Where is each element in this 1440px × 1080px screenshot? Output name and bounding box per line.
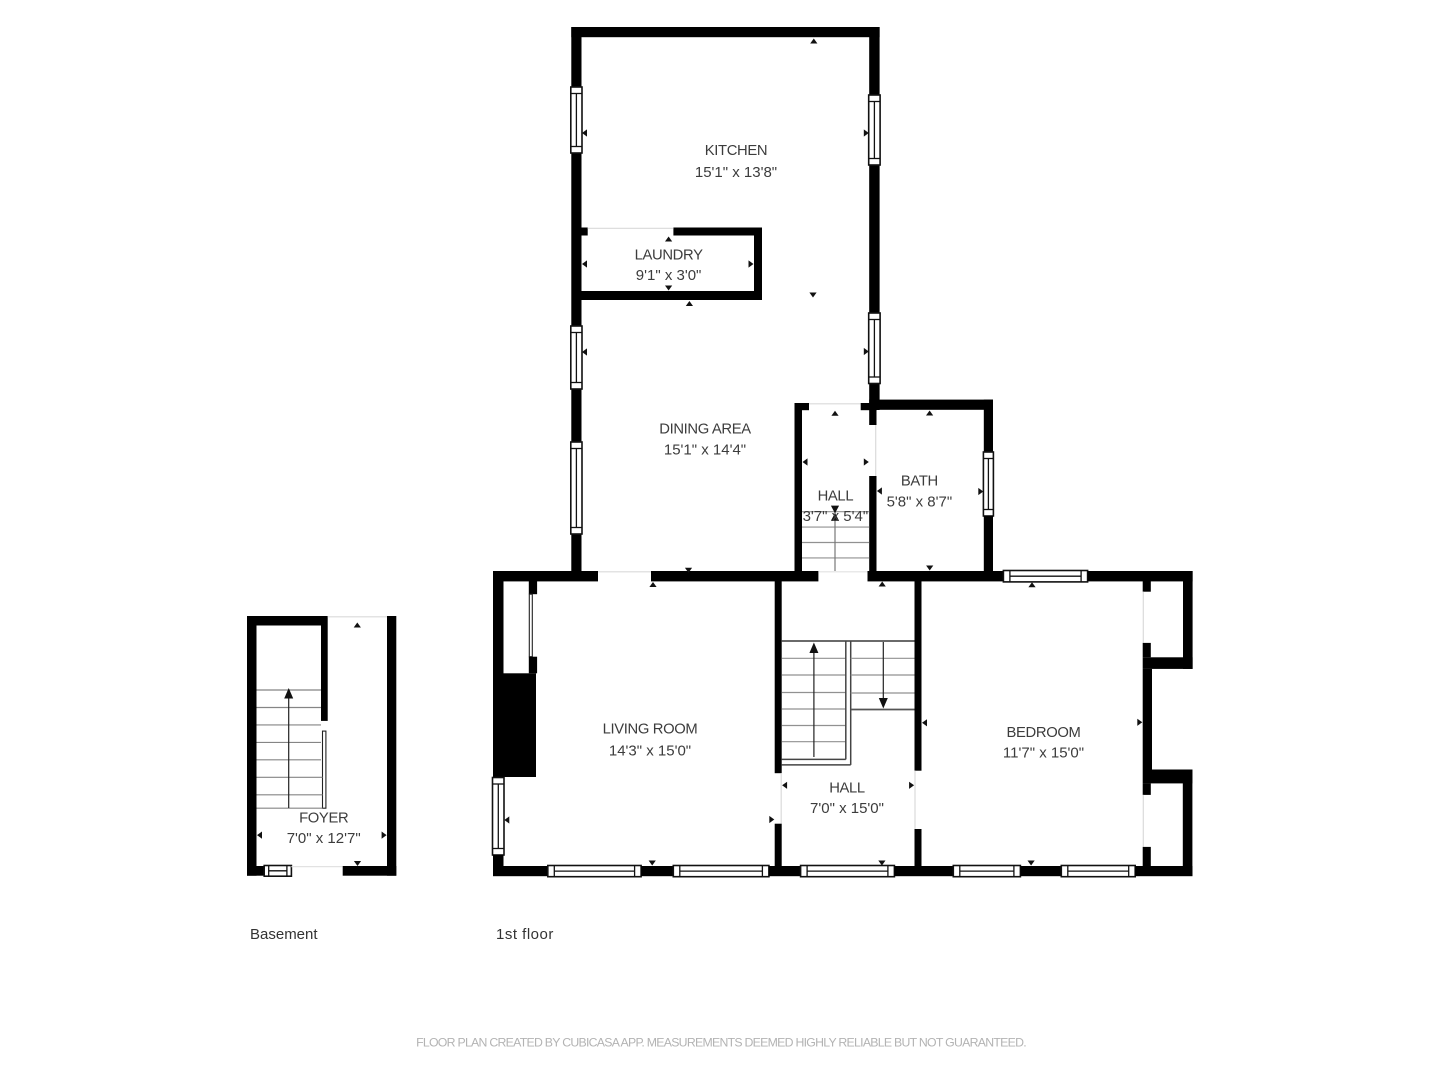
- svg-text:7'0" x 12'7": 7'0" x 12'7": [287, 830, 361, 847]
- svg-text:15'1" x 13'8": 15'1" x 13'8": [695, 164, 777, 181]
- svg-text:DINING AREA: DINING AREA: [659, 422, 751, 438]
- svg-text:15'1" x 14'4": 15'1" x 14'4": [664, 442, 746, 459]
- svg-text:FOYER: FOYER: [299, 810, 348, 826]
- svg-text:HALL: HALL: [818, 488, 854, 504]
- svg-text:LAUNDRY: LAUNDRY: [635, 247, 703, 263]
- svg-text:BATH: BATH: [901, 473, 938, 489]
- svg-text:1st floor: 1st floor: [496, 926, 554, 943]
- svg-text:14'3" x 15'0": 14'3" x 15'0": [609, 742, 691, 759]
- svg-text:LIVING ROOM: LIVING ROOM: [603, 722, 698, 738]
- svg-text:9'1" x 3'0": 9'1" x 3'0": [636, 267, 702, 284]
- svg-text:3'7" x 5'4": 3'7" x 5'4": [803, 508, 869, 525]
- svg-text:5'8" x 8'7": 5'8" x 8'7": [887, 493, 953, 510]
- svg-text:11'7" x 15'0": 11'7" x 15'0": [1003, 744, 1084, 761]
- svg-text:KITCHEN: KITCHEN: [705, 143, 768, 159]
- svg-text:BEDROOM: BEDROOM: [1006, 725, 1080, 741]
- svg-text:Basement: Basement: [250, 926, 318, 943]
- svg-text:HALL: HALL: [829, 781, 865, 797]
- svg-text:7'0" x 15'0": 7'0" x 15'0": [810, 800, 884, 817]
- svg-text:FLOOR PLAN CREATED BY CUBICASA: FLOOR PLAN CREATED BY CUBICASA APP. MEAS…: [416, 1036, 1026, 1050]
